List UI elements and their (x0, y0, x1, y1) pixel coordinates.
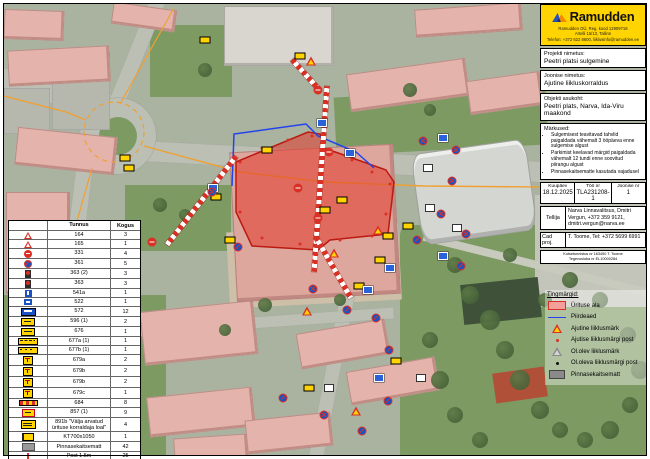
sign-code: 361 (48, 259, 111, 268)
sign-code: 363 (2) (48, 269, 111, 278)
stripe-bar-icon (19, 400, 38, 406)
area-pink-symbol (548, 301, 566, 310)
no-parking-sign-marker (413, 236, 422, 245)
blue-sign-marker (438, 134, 448, 142)
no-stopping-sign-marker (437, 210, 446, 219)
no-parking-sign-marker (358, 427, 367, 436)
map-key-label: Ol.oleva liiklusmärgi post (571, 360, 637, 366)
note-item: Parkimist keelavad märgid paigaldada väh… (551, 151, 642, 169)
sign-table-row: Post 1.5m25 (9, 452, 140, 459)
sign-table-row: 6761 (9, 327, 140, 337)
sign-icon-cell (9, 388, 48, 398)
direction-sign-marker (416, 374, 426, 382)
map-key-item: Ol.oleva liiklusmärgi post (547, 360, 647, 366)
cad-designer-row: Cad proj. T. Toome, Tel: +372 5699 6991 (540, 232, 646, 248)
sign-code: 677a (1) (48, 337, 111, 345)
sign-qty: 4 (111, 422, 140, 428)
sign-qty: 2 (111, 357, 140, 363)
roundabout-guide-line (84, 102, 144, 162)
sign-table-row: 677a (1)1 (9, 337, 140, 346)
direction-sign-marker (425, 204, 435, 212)
sign-icon-cell (9, 279, 48, 288)
temporary-yellow-sign-marker (383, 233, 394, 240)
no-stopping-sign-marker (462, 230, 471, 239)
dot-red-symbol (556, 339, 559, 342)
sign-icon-cell (9, 240, 48, 248)
tri-gray-symbol (552, 347, 562, 356)
sign-icon-cell (9, 298, 48, 306)
dot-black-symbol (556, 362, 559, 365)
sign-code: 857 (1) (48, 408, 111, 417)
temporary-yellow-sign-marker (304, 385, 315, 392)
sign-code: 684 (48, 399, 111, 407)
object-location-value: Peetri plats, Narva, Ida-Viru maakond (544, 103, 642, 118)
notes-label: Märkused: (544, 126, 642, 132)
note-item: Sulgemisest teavitavad tahvlid paigaldad… (551, 133, 642, 151)
work-number-label: Töö nr (576, 184, 609, 189)
no-parking-sign-marker (372, 314, 381, 323)
sign-table-header: Tunnus Kogus (9, 221, 140, 231)
sign-table-row: 57212 (9, 307, 140, 317)
no-parking-sign-marker (234, 243, 243, 252)
ramudden-logo-icon (552, 11, 567, 22)
road-centerline (120, 8, 174, 104)
warning-triangle-marker (351, 407, 361, 416)
fence-blue-symbol (548, 317, 566, 318)
certificate-line: Tegevusluba nr EL10000284 (542, 257, 644, 262)
sign-qty: 5 (111, 261, 140, 267)
sign-code: 572 (48, 307, 111, 316)
no-entry-sign-marker (148, 238, 157, 247)
sign-qty: 25 (111, 453, 140, 459)
direction-sign-marker (452, 224, 462, 232)
warning-triangle-marker (329, 249, 339, 258)
tri-red-symbol (552, 324, 562, 333)
map-key: Tingmärgid: Ürituse alaPiirdeaedAjutine … (545, 290, 649, 385)
blue-arrow-icon (25, 290, 32, 297)
sign-code: 363 (48, 279, 111, 288)
sign-table-row: 679b2 (9, 377, 140, 388)
project-name-box: Projekti nimetus: Peetri platsi sulgemin… (540, 48, 646, 68)
date-value: 18.12.2025 (542, 190, 573, 196)
no-entry-sign-marker (294, 184, 303, 193)
sign-table-row: 363 (2)3 (9, 269, 140, 279)
client-value: Narva Linnavalitsus, Dmitri Vergun, +372… (566, 207, 645, 229)
no-parking-sign-marker (457, 262, 466, 271)
map-key-item: Ol.olev liiklusmärk (547, 347, 647, 356)
blue-sign-marker (374, 374, 384, 382)
sign-icon-cell (9, 418, 48, 431)
map-key-item: Ajutise liiklusmärgi post (547, 337, 647, 343)
blue-sign-marker (363, 286, 373, 294)
no-parking-sign-icon (25, 280, 31, 288)
sign-code: 676 (48, 327, 111, 336)
sign-quantity-table: Tunnus Kogus 1643165133143615363 (2)3363… (8, 220, 141, 459)
no-parking-sign-marker (279, 394, 288, 403)
map-key-label: Ürituse ala (571, 303, 600, 309)
map-key-item: Piirdeaed (547, 314, 647, 320)
sign-code: KT700x1050 (48, 432, 111, 441)
sign-code: 679b (48, 366, 111, 376)
sign-table-row: 6848 (9, 399, 140, 408)
date-label: Kuupäev (542, 184, 573, 189)
sign-table-row: 1643 (9, 231, 140, 240)
sign-qty: 1 (111, 347, 140, 353)
map-key-label: Piirdeaed (571, 314, 596, 320)
map-key-item: Ajutine liiklusmärk (547, 324, 647, 333)
sign-table-row: 5221 (9, 298, 140, 307)
yellow-bar-dashed-icon (18, 347, 38, 354)
sign-table-row: Pinnasekaitsematt42 (9, 442, 140, 452)
warning-triangle-marker (306, 57, 316, 66)
sign-qty: 8 (111, 400, 140, 406)
no-entry-sign-marker (314, 86, 323, 95)
temporary-yellow-sign-marker (120, 155, 131, 162)
sign-qty: 2 (111, 368, 140, 374)
temporary-yellow-sign-marker (337, 197, 348, 204)
sign-qty: 1 (111, 434, 140, 440)
temporary-yellow-sign-marker (225, 237, 236, 244)
temporary-yellow-sign-marker (262, 147, 273, 154)
sign-icon-cell (9, 399, 48, 407)
yellow-plate-icon (23, 356, 33, 365)
work-number-cell: Töö nr TLA231208-1 (575, 183, 611, 203)
sheet-number-label: Joonise nr (613, 184, 644, 189)
warning-triangle-marker (302, 307, 312, 316)
sign-icon-cell (9, 377, 48, 387)
sheet-number-cell: Joonise nr 1 (612, 183, 645, 203)
yellow-plate-icon (23, 367, 33, 376)
yellow-panel-icon (21, 318, 35, 326)
sign-code: 596 (1) (48, 317, 111, 326)
direction-sign-marker (324, 384, 334, 392)
sign-icon-cell (9, 269, 48, 278)
sign-table-row: 679c1 (9, 388, 140, 399)
object-location-label: Objekti asukoht: (544, 96, 642, 102)
sheet-number-value: 1 (613, 190, 644, 196)
warning-triangle-marker (373, 226, 383, 235)
sign-code: 165 (48, 240, 111, 248)
no-parking-sign-icon (25, 270, 31, 278)
sign-icon-cell (9, 366, 48, 376)
sign-qty: 1 (111, 241, 140, 247)
yellow-bar-icon (18, 338, 38, 345)
blue-sign-marker (438, 252, 448, 260)
no-stopping-sign-marker (208, 188, 217, 197)
map-key-item: Pinnasekaitsematt (547, 370, 647, 379)
sign-icon-cell (9, 249, 48, 258)
sign-icon-cell (9, 337, 48, 345)
no-parking-sign-marker (384, 397, 393, 406)
sign-table-row: 679a2 (9, 355, 140, 366)
sign-code: Pinnasekaitsematt (48, 442, 111, 451)
sign-table-row: 1651 (9, 240, 140, 249)
temporary-yellow-sign-marker (200, 37, 211, 44)
sign-icon-cell (9, 408, 48, 417)
sign-icon-cell (9, 452, 48, 459)
sign-icon-cell (9, 317, 48, 326)
sign-qty: 1 (111, 390, 140, 396)
sign-code: 541a (48, 289, 111, 297)
no-entry-sign-marker (325, 148, 334, 157)
sign-icon-cell (9, 289, 48, 297)
sign-qty: 2 (111, 379, 140, 385)
date-cell: Kuupäev 18.12.2025 (541, 183, 575, 203)
sign-code: 677b (1) (48, 346, 111, 354)
sign-table-row: 541a1 (9, 289, 140, 298)
notes-box: Märkused: Sulgemisest teavitavad tahvlid… (540, 123, 646, 180)
sign-icon-cell (9, 307, 48, 316)
map-key-title: Tingmärgid: (547, 292, 647, 298)
brand-info-line: Telefon: +372 622 8600, liiklusinfo@ramu… (543, 37, 643, 42)
note-item: Pinnasekaitsematte kasutada vajadusel (551, 170, 642, 176)
sign-table-row: 3615 (9, 259, 140, 269)
temporary-yellow-sign-marker (320, 207, 331, 214)
blue-sign-marker (345, 149, 355, 157)
sign-table-header-code: Tunnus (48, 221, 111, 230)
map-key-label: Ol.olev liiklusmärk (571, 349, 619, 355)
no-stopping-icon (24, 260, 32, 268)
title-block-panel: Ramudden Ramudden OÜ, Reg. kood 12909718… (540, 4, 646, 264)
sign-code: 679c (48, 388, 111, 398)
map-key-label: Pinnasekaitsematt (571, 372, 620, 378)
yellow-plate-red-icon (22, 409, 35, 417)
sign-qty: 1 (111, 299, 140, 305)
sign-qty: 3 (111, 271, 140, 277)
sign-icon-cell (9, 432, 48, 441)
certificate-box: Kutsetunnistus nr 163450 T. Toome Tegevu… (540, 250, 646, 264)
no-stopping-sign-marker (452, 146, 461, 155)
no-parking-sign-marker (385, 346, 394, 355)
sign-icon-cell (9, 355, 48, 365)
sign-table-header-qty: Kogus (111, 223, 140, 229)
ramudden-logo-box: Ramudden Ramudden OÜ, Reg. kood 12909718… (540, 4, 646, 46)
object-location-box: Objekti asukoht: Peetri plats, Narva, Id… (540, 93, 646, 121)
cad-designer-value: T. Toome, Tel: +372 5699 6991 (566, 233, 645, 247)
meta-row: Kuupäev 18.12.2025 Töö nr TLA231208-1 Jo… (540, 182, 646, 204)
sign-table-header-icon (9, 221, 48, 230)
sign-qty: 3 (111, 281, 140, 287)
post-red-icon (27, 453, 29, 459)
brand-name: Ramudden (570, 9, 635, 24)
road-centerline (4, 96, 86, 120)
blue-panel-icon (21, 308, 36, 316)
no-parking-sign-marker (343, 306, 352, 315)
tri-roadworks-icon (24, 232, 32, 239)
drawing-name-value: Ajutine liikluskorraldus (544, 80, 642, 87)
project-name-label: Projekti nimetus: (544, 51, 642, 57)
sign-qty: 1 (111, 338, 140, 344)
sign-table-row: 3314 (9, 249, 140, 259)
map-key-label: Ajutine liiklusmärk (571, 326, 619, 332)
sign-table-row: KT700x10501 (9, 432, 140, 442)
sign-qty: 1 (111, 290, 140, 296)
sign-table-row: 3633 (9, 279, 140, 289)
temporary-yellow-sign-marker (375, 257, 386, 264)
client-label: Tellija (541, 207, 566, 229)
yellow-text-plate-icon (21, 420, 36, 429)
sign-code: 679b (48, 377, 111, 387)
sign-code: Post 1.5m (48, 452, 111, 459)
sign-code: 679a (48, 355, 111, 365)
drawing-name-label: Joonise nimetus: (544, 73, 642, 79)
yellow-plate-icon (23, 378, 33, 387)
sign-qty: 4 (111, 251, 140, 257)
sign-icon-cell (9, 346, 48, 354)
sign-icon-cell (9, 259, 48, 268)
sign-icon-cell (9, 442, 48, 451)
tri-warning-icon (24, 241, 32, 248)
sign-icon-cell (9, 231, 48, 239)
no-stopping-sign-marker (419, 137, 428, 146)
sign-code: 164 (48, 231, 111, 239)
sign-qty: 1 (111, 329, 140, 335)
sign-code: 891b "Välja arvatud ürituse korraldaja l… (48, 418, 111, 431)
drawing-name-box: Joonise nimetus: Ajutine liikluskorraldu… (540, 70, 646, 90)
sign-table-row: 596 (1)2 (9, 317, 140, 327)
temporary-yellow-sign-marker (295, 53, 306, 60)
no-entry-icon (24, 250, 32, 258)
blue-sign-marker (317, 119, 327, 127)
sign-table-row: 891b "Välja arvatud ürituse korraldaja l… (9, 418, 140, 432)
sign-qty: 12 (111, 309, 140, 315)
temporary-yellow-sign-marker (391, 358, 402, 365)
rect-gray-symbol (549, 370, 565, 379)
no-entry-sign-marker (314, 214, 323, 223)
yellow-plate-icon (23, 389, 33, 398)
temporary-yellow-sign-marker (403, 223, 414, 230)
map-key-label: Ajutise liiklusmärgi post (571, 337, 633, 343)
sign-icon-cell (9, 327, 48, 336)
traffic-plan-page: Tunnus Kogus 1643165133143615363 (2)3363… (0, 0, 650, 459)
gray-mat-icon (22, 443, 35, 451)
blue-rect-icon (24, 299, 32, 305)
sign-table-row: 679b2 (9, 366, 140, 377)
sign-qty: 42 (111, 444, 140, 450)
project-name-value: Peetri platsi sulgemine (544, 58, 642, 65)
temporary-yellow-sign-marker (124, 165, 135, 172)
client-row: Tellija Narva Linnavalitsus, Dmitri Verg… (540, 206, 646, 230)
no-stopping-sign-marker (309, 285, 318, 294)
cad-designer-label: Cad proj. (541, 233, 566, 247)
sign-code: 522 (48, 298, 111, 306)
sign-code: 331 (48, 249, 111, 258)
sign-qty: 3 (111, 232, 140, 238)
sign-qty: 2 (111, 319, 140, 325)
yellow-arrow-panel-icon (21, 328, 35, 336)
sign-qty: 9 (111, 410, 140, 416)
map-key-item: Ürituse ala (547, 301, 647, 310)
kt-board-icon (22, 433, 34, 441)
sign-table-row: 857 (1)9 (9, 408, 140, 418)
blue-sign-marker (385, 264, 395, 272)
work-number-value: TLA231208-1 (576, 190, 609, 202)
no-stopping-sign-marker (448, 177, 457, 186)
direction-sign-marker (423, 164, 433, 172)
no-stopping-sign-marker (320, 411, 329, 420)
sign-table-row: 677b (1)1 (9, 346, 140, 355)
